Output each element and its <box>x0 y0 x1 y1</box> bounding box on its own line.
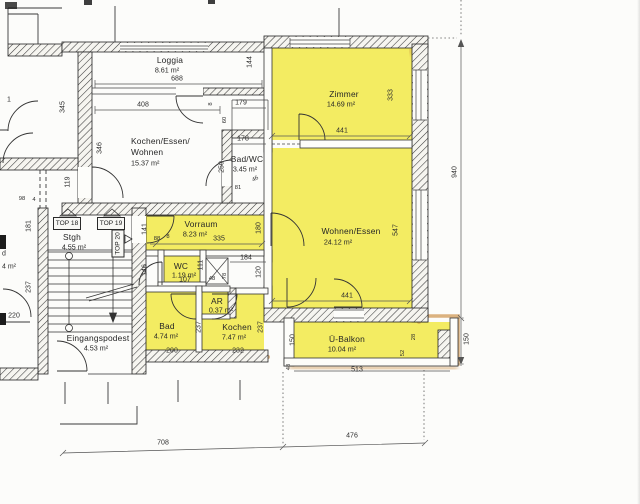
dim-bottom-left: 708 <box>157 440 169 447</box>
dim-kochen-height: 237 <box>258 321 265 333</box>
dim-loggia-depth: 144 <box>247 56 254 68</box>
dim-ar-height: 78 <box>223 273 229 279</box>
dim-stair-bottom: 220 <box>8 313 20 320</box>
dim-vorraum-small2: 8 <box>166 235 169 241</box>
dim-wohnen-height: 547 <box>393 224 400 236</box>
dim-vorraum-small1: 88 <box>154 237 160 243</box>
room-area-balkon: 10.04 m² <box>328 345 356 352</box>
dim-pillar-w: 28 <box>412 334 418 340</box>
room-area-zimmer: 14.69 m² <box>327 100 355 107</box>
unit-tag-top20: TOP 20 <box>112 230 125 258</box>
room-label-loggia: Loggia <box>157 56 183 64</box>
room-label-ar: AR <box>211 297 223 305</box>
dim-zimmer-height: 333 <box>388 89 395 101</box>
room-area-ar: 0.37 m² <box>209 306 233 313</box>
dim-stair-left2: 237 <box>26 281 33 293</box>
dim-vorraum-left: 141 <box>142 223 149 235</box>
floorplan-drawing <box>0 0 640 504</box>
dim-vorraum-width: 335 <box>213 236 225 243</box>
unit-tag-top18: TOP 18 <box>53 217 81 230</box>
room-area-stgh: 4.55 m² <box>62 243 86 250</box>
room-label-vorraum: Vorraum <box>184 220 217 228</box>
partial-label-d: d <box>2 251 6 258</box>
dim-corridor: 119 <box>65 176 72 187</box>
room-label-stgh: Stgh <box>63 233 81 241</box>
dim-shaft-h1: 8 <box>209 102 215 105</box>
dim-left-height1: 345 <box>60 101 67 113</box>
dim-wohnen-width: 441 <box>341 293 353 300</box>
room-label-kew-1: Kochen/Essen/ <box>131 137 190 145</box>
room-area-vorraum: 8.23 m² <box>183 230 207 237</box>
dim-left-small2: 4 <box>32 198 35 204</box>
room-area-badwc: 3.45 m² <box>233 165 257 172</box>
dim-ar-width: 48 <box>209 277 215 283</box>
dim-stair-left1: 181 <box>26 220 33 232</box>
dim-left-small1: 98 <box>19 197 25 203</box>
dim-pillar-h: 52 <box>401 350 407 356</box>
partial-label-1: 1 <box>7 97 11 104</box>
dim-shaft-h2: 60 <box>223 117 229 123</box>
room-label-zimmer: Zimmer <box>329 90 359 98</box>
room-area-eingangspodest: 4.53 m² <box>84 344 108 351</box>
room-area-kew: 15.37 m² <box>131 159 159 166</box>
dim-kew-height: 346 <box>97 142 104 154</box>
dim-badwc-small: 81 <box>235 186 241 192</box>
dim-wc-left: 146 <box>142 264 149 276</box>
dim-vorraum-right: 180 <box>256 222 263 234</box>
dim-badwc-width: 178 <box>237 136 249 143</box>
room-label-wc: WC <box>174 262 188 270</box>
dim-loggia-width: 688 <box>171 76 183 83</box>
dim-kochen-right-top: 120 <box>256 266 263 278</box>
room-area-kochen: 7.47 m² <box>222 333 246 340</box>
dim-badwc-height: 250 <box>219 161 226 173</box>
dim-wc-width: 107 <box>179 277 191 284</box>
room-label-wohnen: Wohnen/Essen <box>321 227 380 235</box>
room-area-wohnen: 24.12 m² <box>324 238 352 245</box>
room-label-badwc: Bad/WC <box>231 155 263 163</box>
dim-balkon-width: 513 <box>351 367 363 374</box>
dim-balkon-height-right: 150 <box>464 333 471 345</box>
dim-zimmer-width: 441 <box>336 128 348 135</box>
dim-balkon-small-left: 48 <box>287 364 293 370</box>
room-area-loggia: 8.61 m² <box>155 66 179 73</box>
dim-bad-height: 237 <box>196 321 203 333</box>
room-area-bad: 4.74 m² <box>154 332 178 339</box>
unit-tag-top19: TOP 19 <box>97 217 125 230</box>
room-label-eingangspodest: Eingangspodest <box>67 334 130 342</box>
dim-building-height: 940 <box>452 166 459 178</box>
dim-kochen-top: 184 <box>240 255 252 262</box>
dim-kochen-width: 232 <box>232 348 244 355</box>
room-label-kochen: Kochen <box>222 323 252 331</box>
partial-label-4sqm: 4 m² <box>2 264 16 271</box>
dim-bad-width: 200 <box>166 348 178 355</box>
room-label-bad: Bad <box>159 322 175 330</box>
dim-bottom-right: 476 <box>346 433 358 440</box>
room-label-balkon: Ü-Balkon <box>329 335 365 343</box>
floorplan-page: Loggia 8.61 m² Kochen/Essen/ Wohnen 15.3… <box>0 0 640 504</box>
dim-kew-width: 408 <box>137 102 149 109</box>
dim-wc-height: 111 <box>198 260 205 271</box>
dim-balkon-height-left: 150 <box>290 334 297 346</box>
dim-shaft-width: 179 <box>235 100 247 107</box>
room-label-kew-2: Wohnen <box>131 148 163 156</box>
